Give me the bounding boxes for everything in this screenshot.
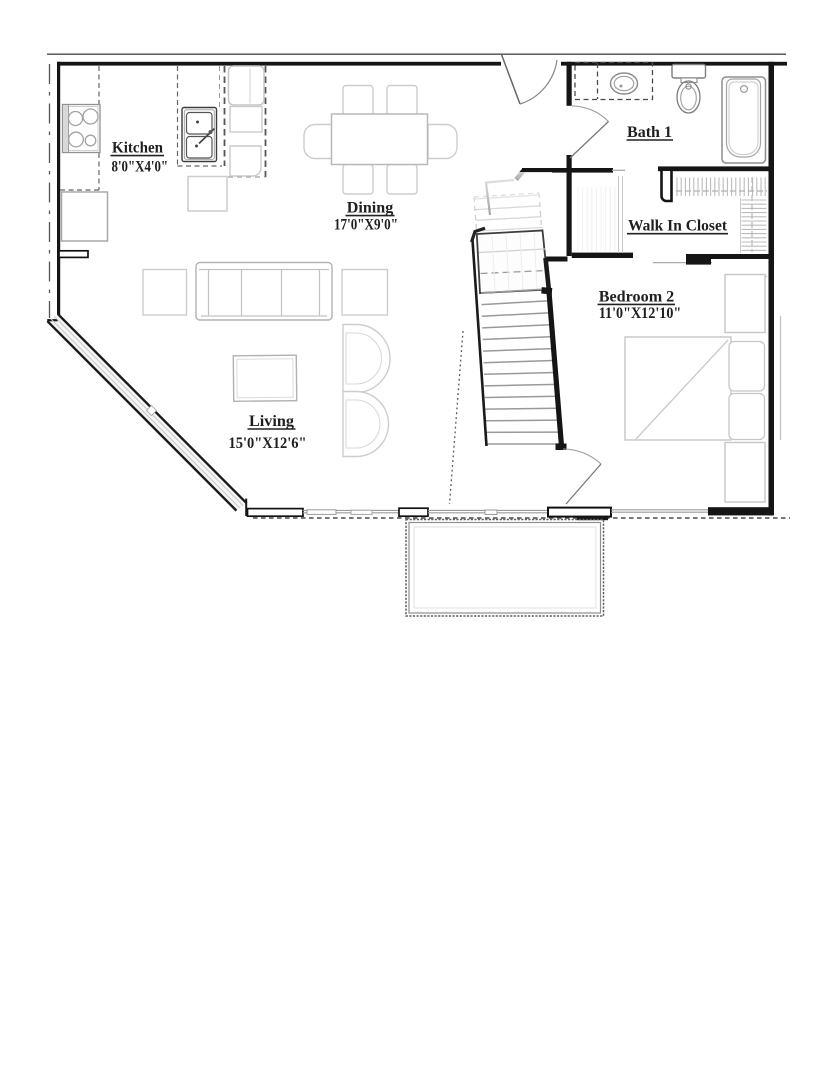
svg-text:17'0"X9'0": 17'0"X9'0" — [334, 216, 398, 233]
svg-text:8'0"X4'0": 8'0"X4'0" — [112, 158, 169, 175]
svg-text:Living: Living — [249, 413, 294, 430]
svg-text:Kitchen: Kitchen — [112, 140, 163, 157]
svg-text:Bedroom 2: Bedroom 2 — [599, 288, 675, 305]
svg-text:Bath 1: Bath 1 — [627, 124, 672, 141]
svg-text:Walk In Closet: Walk In Closet — [628, 218, 728, 235]
svg-text:11'0"X12'10": 11'0"X12'10" — [599, 305, 682, 322]
svg-text:15'0"X12'6": 15'0"X12'6" — [229, 435, 307, 452]
svg-text:Dining: Dining — [347, 200, 394, 217]
